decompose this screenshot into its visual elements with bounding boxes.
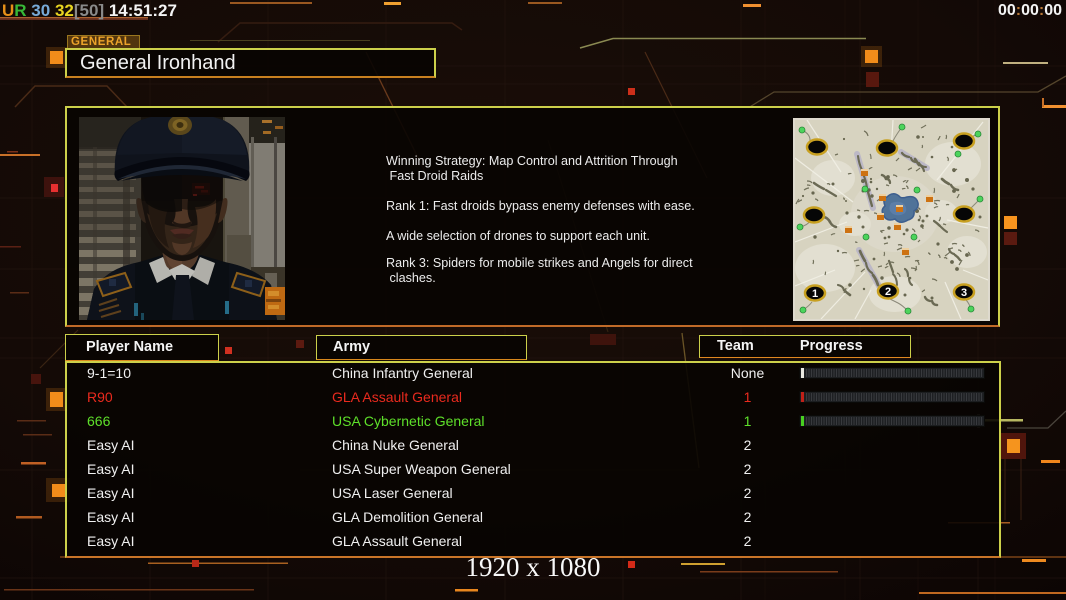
- svg-text:2: 2: [885, 286, 891, 298]
- svg-text:1: 1: [812, 288, 818, 300]
- svg-text:3: 3: [961, 287, 967, 299]
